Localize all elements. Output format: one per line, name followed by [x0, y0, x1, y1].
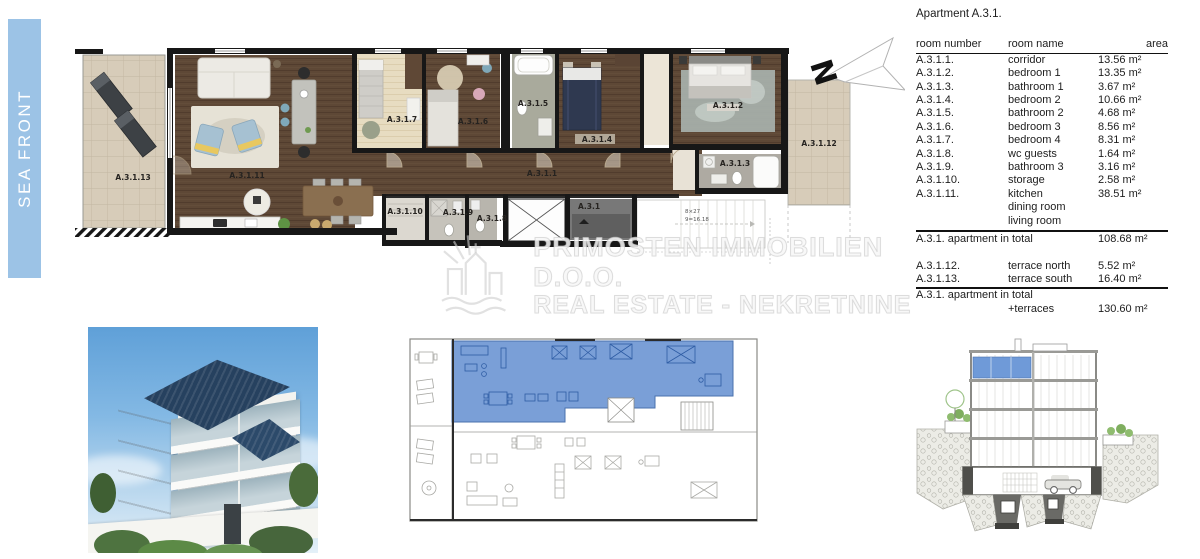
terrace-edge-hatch [75, 228, 171, 237]
table-row: A.3.1.13.terrace south16.40 m² [916, 273, 1168, 286]
table-row: A.3.1.9.bathroom 33.16 m² [916, 161, 1168, 174]
stairwell: 8×27 9=16.18 [637, 200, 765, 252]
table-row: A.3.1.8.wc guests1.64 m² [916, 148, 1168, 161]
table-row: A.3.1.10.storage2.58 m² [916, 174, 1168, 187]
table-row: living room [916, 215, 1168, 228]
floor-overview-plan [405, 336, 761, 553]
label-living: A.3.1.11 [229, 171, 264, 180]
grand-total-sublabel: +terraces [1008, 303, 1098, 316]
stair-note-1: 8×27 [685, 209, 701, 215]
table-row: A.3.1.5.bathroom 24.68 m² [916, 107, 1168, 120]
grand-total-label: A.3.1. apartment in total [916, 289, 1033, 302]
table-row: A.3.1.3.bathroom 13.67 m² [916, 81, 1168, 94]
floor-plan-drawing: 8×27 9=16.18 [75, 28, 905, 268]
building-section [915, 333, 1160, 553]
grand-total-value: 130.60 m² [1098, 303, 1168, 316]
room-hall [673, 149, 697, 190]
section-building [969, 339, 1098, 467]
building-door [224, 504, 241, 544]
table-title: Apartment A.3.1. [916, 8, 1168, 21]
kitchen-counter [180, 217, 280, 229]
label-storage: A.3.1.10 [387, 207, 422, 216]
page: SEA FRONT [0, 0, 1200, 559]
col-header-room-number: room number [916, 38, 1008, 51]
label-bathroom3: A.3.1.9 [443, 208, 473, 217]
label-bedroom2: A.3.1.4 [582, 135, 612, 144]
table-row: A.3.1.11.kitchen38.51 m² [916, 188, 1168, 201]
label-bathroom2: A.3.1.5 [518, 99, 548, 108]
label-terrace-south: A.3.1.13 [115, 173, 150, 182]
label-terrace-north: A.3.1.12 [801, 139, 836, 148]
label-bedroom3: A.3.1.6 [458, 117, 488, 126]
sea-front-band: SEA FRONT [8, 19, 41, 278]
foundations [963, 495, 1101, 531]
sofa [198, 58, 281, 98]
stool [253, 196, 261, 204]
label-bathroom1: A.3.1.3 [720, 159, 750, 168]
col-header-area: area [1098, 38, 1168, 51]
table-row: A.3.1.7.bedroom 48.31 m² [916, 134, 1168, 147]
table-header-row: room number room name area [916, 38, 1168, 53]
label-corridor: A.3.1.1 [527, 169, 557, 178]
table-row: dining room [916, 201, 1168, 214]
apartment-total-value: 108.68 m² [1098, 233, 1168, 246]
floor-plan: 8×27 9=16.18 [75, 28, 905, 268]
highlighted-unit [973, 357, 1031, 378]
terrace-south [83, 55, 165, 228]
label-bedroom4: A.3.1.7 [387, 115, 417, 124]
table-row: A.3.1.12.terrace north5.52 m² [916, 260, 1168, 273]
sea-front-label: SEA FRONT [15, 89, 35, 208]
label-entrance: A.3.1 [578, 202, 600, 211]
room-vestibule [644, 53, 669, 145]
dining-table [303, 179, 373, 230]
building-render [108, 355, 303, 553]
table-row: A.3.1.1.corridor13.56 m² [916, 54, 1168, 67]
label-wc: A.3.1.8 [477, 214, 507, 223]
stair-note-2: 9=16.18 [685, 217, 709, 223]
table-row: A.3.1.2.bedroom 113.35 m² [916, 67, 1168, 80]
area-table: Apartment A.3.1. room number room name a… [916, 8, 1168, 316]
table-row: A.3.1.4.bedroom 210.66 m² [916, 94, 1168, 107]
col-header-room-name: room name [1008, 38, 1098, 51]
terrace-rows: A.3.1.12.terrace north5.52 m² A.3.1.13.t… [916, 260, 1168, 290]
label-bedroom1: A.3.1.2 [713, 101, 743, 110]
table-row: A.3.1.6.bedroom 38.56 m² [916, 121, 1168, 134]
grand-total: A.3.1. apartment in total +terraces130.6… [916, 289, 1168, 316]
elevator-shaft [508, 199, 565, 241]
north-arrow-icon: N [802, 38, 905, 90]
apartment-total-row: A.3.1. apartment in total 108.68 m² [916, 230, 1168, 246]
terrace-north [788, 80, 850, 243]
watermark-line2: Real Estate - Nekretnine [533, 292, 978, 319]
basement-garage [963, 467, 1101, 495]
building-photo [88, 327, 318, 553]
